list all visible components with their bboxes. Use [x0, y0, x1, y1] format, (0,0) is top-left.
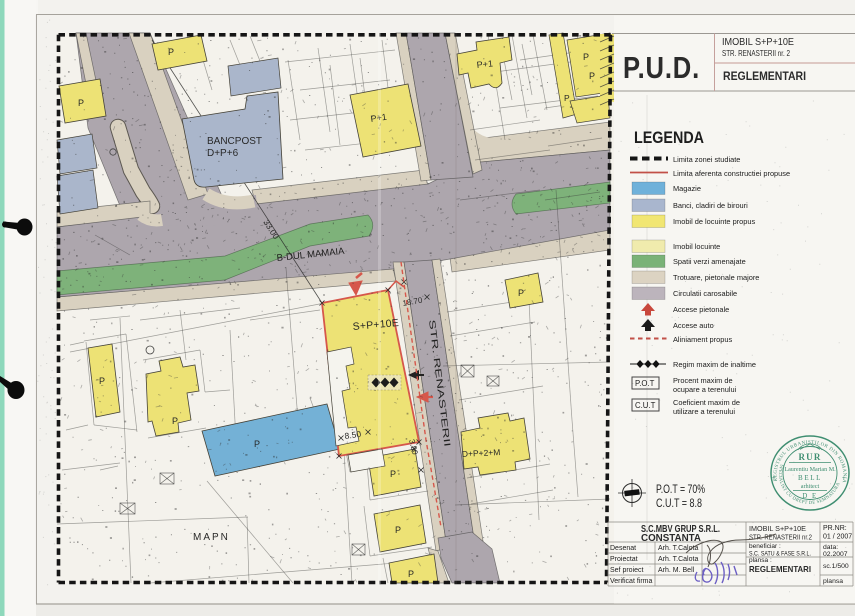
svg-text:Accese auto: Accese auto: [673, 321, 714, 330]
svg-text:arhitect: arhitect: [801, 483, 820, 490]
svg-text:Proiectat: Proiectat: [610, 556, 638, 563]
svg-text:Trotuare, pietonale majore: Trotuare, pietonale majore: [673, 273, 759, 282]
svg-text:Verificat firma: Verificat firma: [610, 578, 653, 585]
svg-text:sc.1/500: sc.1/500: [823, 563, 849, 570]
svg-text:utilizare a terenului: utilizare a terenului: [673, 407, 735, 416]
svg-text:Imobil de locuinte propus: Imobil de locuinte propus: [673, 217, 755, 226]
svg-text:Arh. T.Calota: Arh. T.Calota: [658, 545, 698, 552]
svg-text:Circulatii carosabile: Circulatii carosabile: [673, 289, 737, 298]
svg-text:Laurentiu Marian M.: Laurentiu Marian M.: [784, 467, 836, 473]
svg-text:Sef proiect: Sef proiect: [610, 567, 644, 574]
svg-text:Magazie: Magazie: [673, 184, 701, 193]
svg-text:plansa :: plansa :: [749, 557, 772, 564]
svg-text:Regim maxim de inaltime: Regim maxim de inaltime: [673, 360, 756, 369]
svg-text:RUR: RUR: [798, 452, 821, 462]
svg-text:Imobil locuinte: Imobil locuinte: [673, 242, 720, 251]
svg-text:Procent maxim de: Procent maxim de: [673, 376, 733, 385]
svg-text:D E: D E: [802, 493, 817, 500]
svg-text:Spatii verzi amenajate: Spatii verzi amenajate: [673, 257, 746, 266]
svg-text:Arh. M. Bell: Arh. M. Bell: [658, 567, 695, 574]
svg-text:Accese pietonale: Accese pietonale: [673, 305, 729, 314]
svg-text:PR.NR:: PR.NR:: [823, 525, 847, 532]
svg-text:plansa: plansa: [823, 578, 843, 585]
svg-text:data:: data:: [823, 544, 838, 551]
svg-text:Limita zonei studiate: Limita zonei studiate: [673, 155, 740, 164]
svg-text:Aliniament propus: Aliniament propus: [673, 335, 732, 344]
svg-text:Arh. T.Calota: Arh. T.Calota: [658, 556, 698, 563]
svg-text:P.O.T: P.O.T: [635, 379, 655, 388]
svg-text:01 / 2007: 01 / 2007: [823, 534, 852, 541]
svg-text:Coeficient maxim de: Coeficient maxim de: [673, 398, 740, 407]
svg-text:Banci, cladiri de birouri: Banci, cladiri de birouri: [673, 201, 748, 210]
svg-text:+: +: [842, 475, 846, 482]
svg-text:STR. RENASTERII nr.2: STR. RENASTERII nr.2: [749, 533, 812, 542]
svg-text:STR. RENASTERII nr. 2: STR. RENASTERII nr. 2: [722, 48, 790, 58]
svg-text:P.U.D.: P.U.D.: [623, 50, 700, 85]
svg-text:REGLEMENTARI: REGLEMENTARI: [723, 69, 806, 83]
svg-text:Desenat: Desenat: [610, 545, 636, 552]
svg-text:ocupare a terenului: ocupare a terenului: [673, 385, 737, 394]
svg-text:LEGENDA: LEGENDA: [634, 128, 704, 147]
svg-text:REGLEMENTARI: REGLEMENTARI: [749, 564, 811, 574]
svg-text:+: +: [772, 475, 776, 482]
svg-text:C.U.T: C.U.T: [635, 401, 656, 410]
svg-text:P.O.T = 70%: P.O.T = 70%: [656, 484, 705, 496]
svg-text:IMOBIL S+P+10E: IMOBIL S+P+10E: [722, 37, 794, 48]
svg-text:beneficiar :: beneficiar :: [749, 543, 781, 550]
svg-text:02.2007: 02.2007: [823, 551, 848, 558]
svg-text:BELL: BELL: [798, 474, 822, 482]
svg-text:CONSTANTA: CONSTANTA: [641, 532, 701, 544]
svg-text:C.U.T = 8.8: C.U.T = 8.8: [656, 498, 702, 510]
svg-text:Limita aferenta constructiei p: Limita aferenta constructiei propuse: [673, 169, 790, 178]
